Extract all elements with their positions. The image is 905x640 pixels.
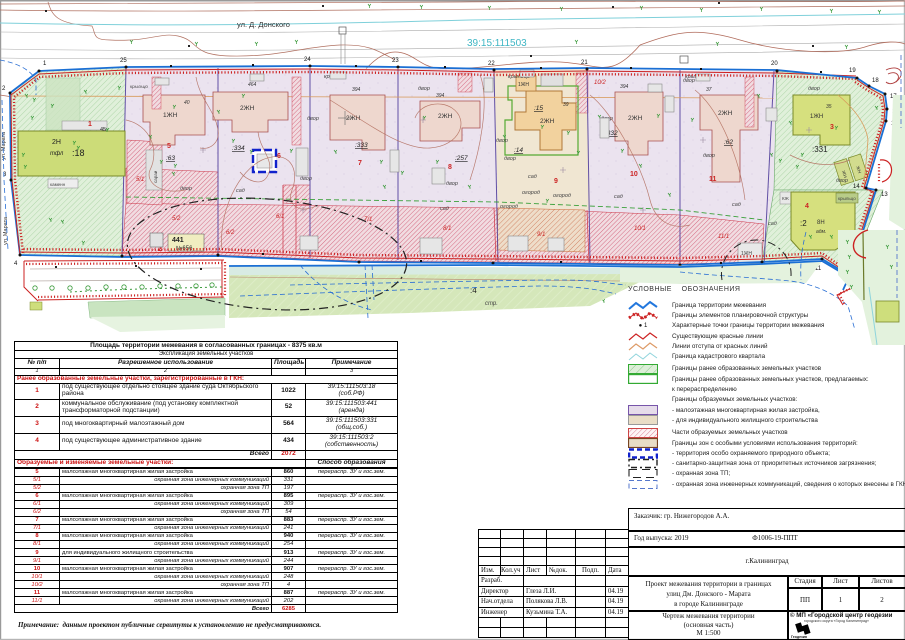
svg-text:КЖ: КЖ: [782, 196, 790, 201]
svg-text:9: 9: [554, 178, 558, 185]
svg-text:394: 394: [352, 87, 361, 93]
svg-text:двор: двор: [504, 156, 516, 162]
svg-text:огород: огород: [522, 190, 540, 196]
svg-text:39: 39: [563, 102, 569, 108]
svg-text:21: 21: [581, 60, 588, 66]
svg-text:10/1: 10/1: [634, 226, 646, 232]
svg-text:6/2: 6/2: [226, 230, 235, 236]
svg-text:37: 37: [706, 87, 712, 93]
svg-text:огород: огород: [500, 204, 518, 210]
svg-text:8/1: 8/1: [443, 226, 451, 232]
svg-text:двор: двор: [418, 86, 430, 92]
svg-text:11/1: 11/1: [718, 234, 729, 240]
svg-text:крыльцо: крыльцо: [130, 84, 148, 89]
svg-text:ул. Марата: ул. Марата: [1, 131, 7, 160]
svg-text:10/2: 10/2: [594, 80, 606, 86]
svg-text:20: 20: [771, 61, 778, 67]
svg-text:1: 1: [43, 61, 47, 67]
svg-text:2ЖН: 2ЖН: [540, 118, 555, 125]
svg-text::15: :15: [534, 105, 543, 112]
svg-text:1: 1: [88, 121, 92, 128]
svg-text:1ЖН: 1ЖН: [518, 82, 529, 88]
svg-text:10: 10: [630, 171, 638, 178]
svg-text:18: 18: [872, 78, 879, 84]
svg-text:адм.: адм.: [816, 229, 826, 235]
svg-text:сад: сад: [528, 174, 537, 180]
svg-text::2: :2: [800, 219, 807, 228]
svg-text:35: 35: [826, 104, 832, 110]
svg-text:сад: сад: [732, 202, 741, 208]
svg-text:11: 11: [709, 176, 717, 183]
svg-text:сад: сад: [236, 188, 245, 194]
svg-text:39:15:111503: 39:15:111503: [467, 38, 527, 49]
svg-text:394: 394: [436, 93, 445, 99]
svg-text:23: 23: [392, 58, 399, 64]
svg-text:двор: двор: [446, 181, 458, 187]
svg-text:22: 22: [488, 61, 495, 67]
svg-text:40: 40: [184, 100, 190, 106]
svg-text:двор: двор: [496, 138, 508, 144]
svg-text:двор: двор: [703, 153, 715, 159]
svg-text::63: :63: [166, 155, 175, 162]
svg-text:сад: сад: [614, 194, 623, 200]
svg-text::257: :257: [455, 155, 468, 162]
svg-text:4: 4: [14, 261, 18, 267]
svg-text:2: 2: [2, 86, 6, 92]
svg-text:сад: сад: [440, 206, 449, 212]
svg-text:2ЖН: 2ЖН: [718, 110, 733, 117]
svg-text:5/2: 5/2: [172, 216, 181, 222]
svg-text:464: 464: [248, 82, 257, 88]
svg-text:сад: сад: [768, 221, 777, 227]
svg-text:двор: двор: [300, 176, 312, 182]
svg-text:2Н: 2Н: [52, 139, 61, 146]
svg-text:5/1: 5/1: [136, 177, 144, 183]
svg-text:6/1: 6/1: [276, 214, 284, 220]
svg-text:огород: огород: [553, 193, 571, 199]
svg-text:двор: двор: [180, 186, 192, 192]
svg-text:19: 19: [849, 68, 856, 74]
svg-text:ул. Д. Донского: ул. Д. Донского: [237, 20, 290, 29]
svg-text:45: 45: [100, 127, 106, 133]
svg-text:394: 394: [620, 84, 629, 90]
svg-text:4: 4: [805, 203, 809, 210]
svg-text:2ЖН: 2ЖН: [438, 113, 453, 120]
svg-text:тфл: тфл: [50, 151, 64, 157]
svg-text:24: 24: [304, 57, 311, 63]
svg-text::14: :14: [514, 147, 523, 154]
svg-text::333: :333: [355, 142, 368, 149]
svg-text:крыльцо: крыльцо: [838, 196, 856, 201]
svg-text:двор: двор: [307, 116, 319, 122]
svg-text:1ЖН: 1ЖН: [810, 114, 823, 120]
svg-text:441: 441: [172, 237, 184, 244]
svg-text:каменн: каменн: [50, 182, 66, 187]
svg-text:7: 7: [358, 160, 362, 167]
svg-text:9/1: 9/1: [537, 232, 545, 238]
svg-text:двор: двор: [808, 86, 820, 92]
svg-text:7/1: 7/1: [364, 217, 372, 223]
svg-text:2ЖН: 2ЖН: [240, 105, 255, 112]
svg-text:двор: двор: [836, 178, 848, 184]
svg-text::334: :334: [232, 145, 245, 152]
svg-text:13: 13: [881, 192, 888, 198]
svg-text:5: 5: [167, 143, 171, 150]
svg-text:3: 3: [830, 124, 834, 131]
svg-text:8: 8: [448, 164, 452, 171]
svg-text:25: 25: [120, 58, 127, 64]
svg-text:2ЖН: 2ЖН: [628, 115, 643, 122]
svg-text:14: 14: [853, 184, 860, 190]
svg-text:8Н: 8Н: [817, 220, 825, 226]
svg-text:стр.: стр.: [485, 301, 498, 307]
svg-text::331: :331: [812, 145, 828, 154]
svg-text:сараи: сараи: [153, 170, 158, 183]
svg-text:1ЖН: 1ЖН: [163, 112, 178, 119]
